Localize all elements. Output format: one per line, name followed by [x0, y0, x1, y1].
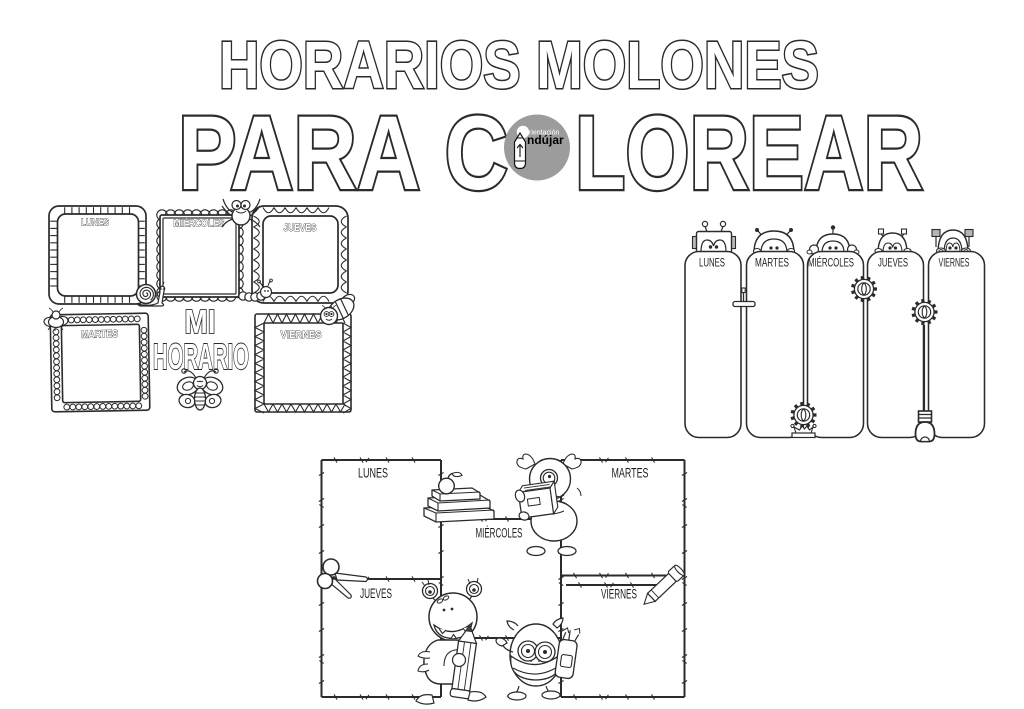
- svg-text:VIERNES: VIERNES: [939, 256, 970, 270]
- svg-text:MARTES: MARTES: [81, 328, 118, 341]
- svg-text:MI: MI: [185, 303, 216, 340]
- svg-text:PARA C: PARA C: [178, 95, 508, 212]
- svg-text:ndújar: ndújar: [527, 133, 564, 147]
- svg-text:HORARIOS MOLONES: HORARIOS MOLONES: [219, 28, 819, 103]
- svg-text:VIERNES: VIERNES: [601, 587, 637, 602]
- svg-text:MIÉRCOLES: MIÉRCOLES: [475, 525, 522, 540]
- svg-text:MIÉRCOLES: MIÉRCOLES: [808, 255, 854, 270]
- svg-text:MARTES: MARTES: [611, 466, 648, 481]
- svg-text:MIÉRCOLES: MIÉRCOLES: [174, 216, 225, 229]
- svg-text:LUNES: LUNES: [699, 256, 725, 270]
- svg-text:MARTES: MARTES: [755, 256, 789, 270]
- svg-text:HORARIO: HORARIO: [153, 336, 249, 377]
- svg-text:LOREAR: LOREAR: [575, 95, 923, 212]
- svg-text:VIERNES: VIERNES: [281, 329, 322, 341]
- svg-text:JUEVES: JUEVES: [878, 256, 908, 270]
- svg-text:LUNES: LUNES: [81, 216, 109, 228]
- svg-text:JUEVES: JUEVES: [360, 586, 392, 601]
- svg-text:LUNES: LUNES: [358, 465, 388, 480]
- svg-text:JUEVES: JUEVES: [284, 222, 317, 234]
